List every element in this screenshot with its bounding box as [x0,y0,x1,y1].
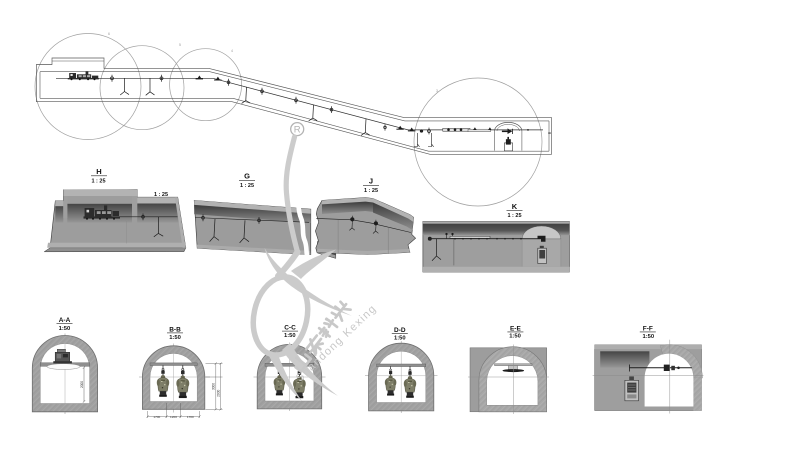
svg-text:1 : 25: 1 : 25 [364,188,378,194]
svg-text:2000: 2000 [217,390,221,397]
svg-text:D-D: D-D [394,327,406,334]
svg-text:1:50: 1:50 [59,326,71,332]
svg-text:1 : 25: 1 : 25 [154,192,168,198]
svg-text:1 : 25: 1 : 25 [91,179,105,185]
svg-text:4: 4 [231,49,233,53]
svg-text:1 : 25: 1 : 25 [507,213,521,219]
svg-text:G: G [244,172,250,181]
svg-text:3000: 3000 [212,383,216,390]
svg-text:3: 3 [436,89,438,93]
svg-text:1:50: 1:50 [284,333,296,339]
svg-text:1700: 1700 [153,415,160,419]
svg-text:1:50: 1:50 [642,334,654,340]
svg-text:1:50: 1:50 [169,335,181,341]
svg-text:1200: 1200 [170,415,177,419]
svg-text:K: K [512,202,518,211]
svg-text:R: R [294,125,301,136]
svg-text:6: 6 [108,32,110,36]
svg-text:J: J [369,177,373,186]
svg-text:1:50: 1:50 [509,333,521,339]
svg-text:2000: 2000 [80,381,84,388]
svg-text:H: H [96,167,101,176]
svg-text:1 : 25: 1 : 25 [240,183,254,189]
svg-text:5: 5 [179,43,181,47]
svg-text:1700: 1700 [187,415,194,419]
svg-text:C-C: C-C [284,325,296,332]
svg-text:1:50: 1:50 [394,335,406,341]
svg-text:F-F: F-F [643,325,653,332]
svg-text:A-A: A-A [59,317,71,324]
svg-text:B-B: B-B [169,326,181,333]
svg-text:E-E: E-E [510,325,522,332]
